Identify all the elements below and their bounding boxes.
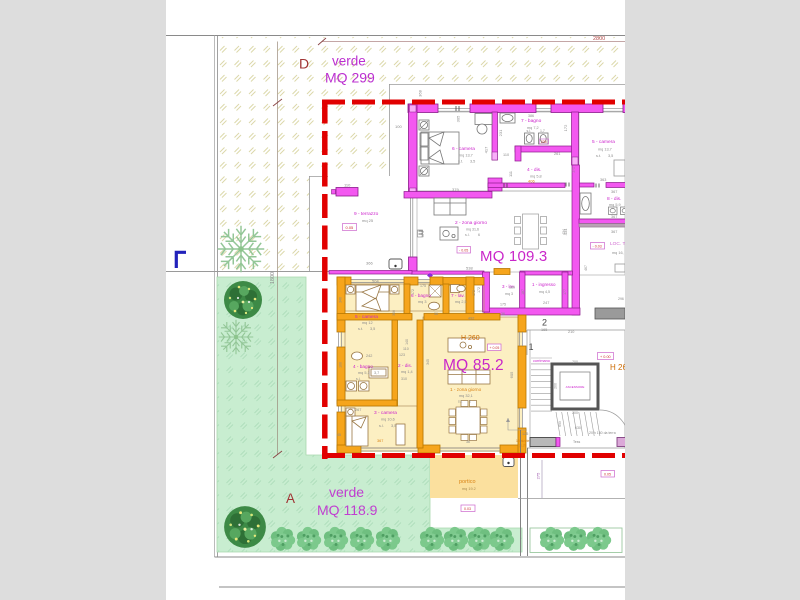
- svg-text:mq 32,1: mq 32,1: [459, 394, 473, 398]
- svg-text:172: 172: [477, 287, 481, 293]
- svg-text:172: 172: [472, 290, 476, 296]
- svg-text:D: D: [299, 56, 309, 72]
- svg-text:434: 434: [562, 229, 566, 235]
- svg-text:ASCENSORE: ASCENSORE: [566, 385, 585, 389]
- svg-text:mq 19.2: mq 19.2: [462, 487, 476, 491]
- svg-text:mq 2,5: mq 2,5: [455, 300, 467, 304]
- svg-text:1: 1: [529, 342, 534, 352]
- svg-text:267: 267: [355, 408, 361, 412]
- svg-text:605: 605: [509, 371, 514, 378]
- svg-text:360: 360: [392, 310, 396, 316]
- svg-text:s.l.: s.l.: [527, 129, 532, 133]
- svg-text:6 - camera: 6 - camera: [452, 146, 475, 152]
- svg-text:406: 406: [528, 179, 535, 184]
- svg-text:492: 492: [468, 317, 474, 321]
- svg-text:175: 175: [500, 303, 506, 307]
- svg-text:s.t.: s.t.: [596, 154, 601, 158]
- svg-text:mq 25: mq 25: [362, 218, 374, 223]
- svg-text:5 - camera: 5 - camera: [592, 139, 615, 145]
- svg-text:Tess: Tess: [573, 440, 580, 444]
- svg-text:171: 171: [572, 167, 576, 173]
- svg-text:467: 467: [584, 265, 588, 271]
- svg-text:386: 386: [528, 114, 534, 118]
- svg-text:310: 310: [401, 377, 407, 381]
- svg-text:200: 200: [572, 360, 578, 364]
- svg-text:379: 379: [452, 187, 459, 192]
- svg-text:200: 200: [554, 383, 558, 389]
- svg-text:mq 4,5: mq 4,5: [539, 290, 550, 294]
- svg-text:2800: 2800: [593, 36, 605, 42]
- svg-text:portico: portico: [459, 479, 476, 485]
- svg-text:242: 242: [366, 354, 372, 358]
- svg-text:367: 367: [377, 439, 383, 443]
- svg-text:45: 45: [337, 433, 341, 437]
- svg-text:s.t.: s.t.: [358, 327, 363, 331]
- svg-text:3,5: 3,5: [370, 327, 375, 331]
- svg-text:0.03: 0.03: [464, 507, 471, 511]
- svg-text:346: 346: [339, 297, 343, 303]
- svg-text:4 - bagno: 4 - bagno: [353, 364, 373, 369]
- svg-text:210: 210: [568, 330, 574, 334]
- svg-text:125: 125: [522, 432, 528, 436]
- svg-text:177: 177: [563, 289, 567, 295]
- svg-text:3 - camera: 3 - camera: [374, 410, 397, 416]
- svg-text:368: 368: [418, 89, 423, 96]
- svg-text:MQ 85.2: MQ 85.2: [443, 357, 504, 374]
- svg-text:- 0.03: - 0.03: [593, 245, 602, 249]
- svg-text:600: 600: [558, 421, 562, 427]
- svg-text:+ 0.05: + 0.05: [490, 346, 500, 350]
- svg-text:275: 275: [536, 472, 541, 479]
- svg-text:110: 110: [344, 183, 351, 188]
- svg-text:A: A: [286, 491, 295, 506]
- svg-text:s.l.: s.l.: [356, 377, 361, 381]
- svg-text:MQ 299: MQ 299: [325, 70, 375, 86]
- svg-text:230: 230: [541, 140, 547, 144]
- svg-text:mq 5,1: mq 5,1: [358, 371, 370, 375]
- svg-text:538: 538: [466, 266, 473, 271]
- svg-text:mq 3: mq 3: [418, 300, 426, 304]
- svg-text:mq 3: mq 3: [505, 292, 513, 296]
- svg-text:367: 367: [611, 215, 617, 219]
- svg-text:3,7: 3,7: [374, 371, 379, 375]
- svg-text:3,5: 3,5: [391, 424, 396, 428]
- svg-text:296: 296: [618, 297, 624, 301]
- svg-text:187: 187: [521, 289, 525, 295]
- svg-text:231: 231: [498, 129, 503, 136]
- svg-text:100: 100: [339, 362, 343, 368]
- svg-text:H 260: H 260: [461, 335, 480, 342]
- svg-text:verde: verde: [329, 484, 364, 500]
- svg-text:- 0.05: - 0.05: [459, 249, 468, 253]
- svg-text:mq 16,: mq 16,: [612, 251, 624, 255]
- svg-text:3,5: 3,5: [470, 160, 475, 164]
- svg-text:36: 36: [501, 312, 505, 316]
- svg-text:175: 175: [420, 284, 426, 288]
- svg-text:366: 366: [366, 261, 373, 266]
- svg-text:630: 630: [575, 426, 581, 430]
- svg-text:MQ 118.9: MQ 118.9: [317, 502, 378, 518]
- svg-text:s.l.: s.l.: [379, 424, 384, 428]
- svg-text:s.t.: s.t.: [458, 160, 463, 164]
- svg-text:corrimano: corrimano: [533, 359, 550, 363]
- svg-text:9 - terrazzo: 9 - terrazzo: [354, 211, 379, 217]
- svg-text:2 - dis.: 2 - dis.: [398, 363, 412, 368]
- svg-text:172: 172: [411, 289, 415, 295]
- svg-text:504: 504: [372, 279, 379, 284]
- svg-text:140: 140: [405, 339, 409, 345]
- svg-text:mq 13,7: mq 13,7: [598, 148, 612, 152]
- svg-text:305: 305: [456, 115, 461, 122]
- svg-text:100: 100: [395, 124, 402, 129]
- svg-text:3,5: 3,5: [608, 154, 613, 158]
- svg-text:1 - zona giorno: 1 - zona giorno: [450, 387, 482, 392]
- svg-text:4 - dis.: 4 - dis.: [527, 167, 541, 173]
- svg-text:417: 417: [484, 146, 489, 153]
- svg-text:160: 160: [509, 286, 515, 290]
- svg-text:172: 172: [563, 124, 568, 131]
- svg-text:5 - camera: 5 - camera: [355, 314, 378, 320]
- svg-text:2: 2: [469, 400, 471, 404]
- svg-text:s.l.: s.l.: [465, 233, 470, 237]
- svg-text:8 - dis.: 8 - dis.: [607, 196, 621, 202]
- svg-text:345: 345: [426, 359, 430, 365]
- svg-text:1 - ingresso: 1 - ingresso: [532, 282, 556, 287]
- svg-text:363: 363: [600, 178, 606, 182]
- svg-text:367: 367: [611, 230, 617, 234]
- svg-text:165: 165: [541, 328, 547, 332]
- svg-text:mq 10,6: mq 10,6: [381, 418, 395, 422]
- svg-text:+ 0.00: + 0.00: [600, 355, 611, 359]
- svg-text:0.05: 0.05: [604, 473, 611, 477]
- svg-text:2 - zona giorno: 2 - zona giorno: [455, 220, 487, 226]
- svg-text:1800: 1800: [270, 272, 276, 284]
- svg-text:110: 110: [503, 153, 509, 157]
- svg-text:MQ 109.3: MQ 109.3: [480, 248, 547, 265]
- svg-text:6: 6: [478, 233, 480, 237]
- svg-text:verde: verde: [332, 54, 366, 69]
- svg-text:mq 13,7: mq 13,7: [459, 154, 473, 158]
- svg-text:mq 12: mq 12: [362, 321, 373, 325]
- svg-text:111: 111: [508, 170, 513, 177]
- svg-text:36: 36: [466, 440, 470, 444]
- svg-text:247: 247: [543, 301, 549, 305]
- svg-text:367: 367: [611, 190, 617, 194]
- svg-text:mq 5,9: mq 5,9: [609, 203, 621, 207]
- svg-text:mq 31,6: mq 31,6: [466, 228, 479, 232]
- svg-text:0.05: 0.05: [346, 225, 355, 230]
- svg-text:200: 200: [572, 411, 578, 415]
- svg-text:110: 110: [403, 347, 409, 351]
- svg-text:s.l.: s.l.: [458, 400, 463, 404]
- svg-text:1,7: 1,7: [540, 129, 545, 133]
- svg-text:261: 261: [554, 152, 560, 156]
- svg-text:mq 1,4: mq 1,4: [401, 370, 413, 374]
- svg-text:20 h 160 da terra: 20 h 160 da terra: [589, 431, 616, 435]
- svg-text:H 26: H 26: [610, 363, 627, 372]
- svg-text:18 alzate: 18 alzate: [516, 439, 530, 443]
- svg-text:123: 123: [399, 353, 405, 357]
- svg-text:2: 2: [542, 318, 547, 328]
- svg-text:7 - lav.: 7 - lav.: [451, 293, 465, 298]
- svg-text:36: 36: [434, 312, 438, 316]
- svg-text:7 - bagno: 7 - bagno: [521, 118, 542, 124]
